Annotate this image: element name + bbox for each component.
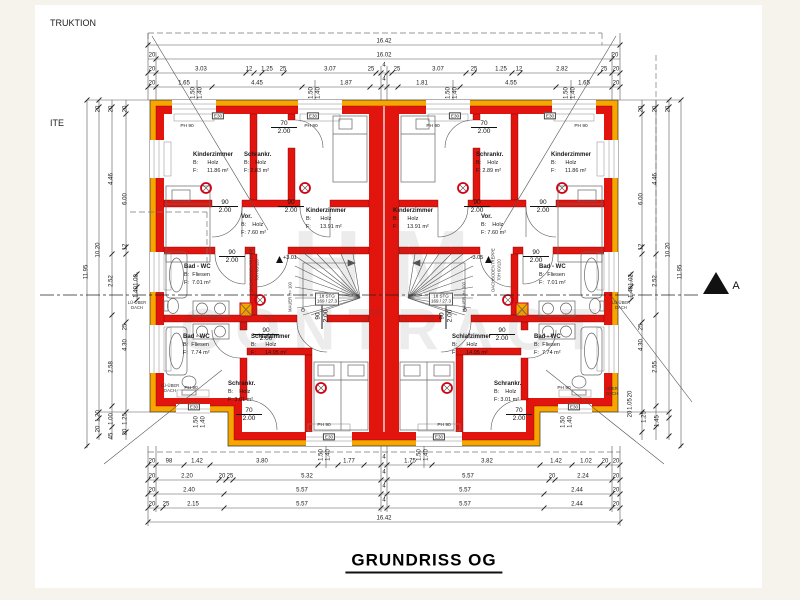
dimension-label: 1.40 xyxy=(424,449,431,461)
section-marker-label: A xyxy=(732,280,739,292)
dimension-label: 5.57 xyxy=(459,488,471,495)
edge-text-seite: ITE xyxy=(50,118,64,128)
dimension-label: 1.81 xyxy=(416,81,428,88)
dimension-label: 20 xyxy=(96,426,103,433)
dimension-label: 20 xyxy=(149,81,156,88)
dimension-label: 2.82 xyxy=(556,67,568,74)
room-area: F: 7.01 m² xyxy=(184,280,211,286)
floor-plan-canvas: .ln{stroke:#555;stroke-width:0.6;fill:no… xyxy=(0,0,800,600)
dimension-label: 98 xyxy=(166,459,173,466)
dimension-label: 20 xyxy=(612,53,619,60)
dimension-label: 2.55 xyxy=(653,361,660,373)
window-type-tag: E30 xyxy=(307,112,319,119)
dimension-label: 1.40 xyxy=(201,416,208,428)
dimension-label: 1.87 xyxy=(340,81,352,88)
dimension-label: 20 xyxy=(149,53,156,60)
dimension-label: 1.50 xyxy=(194,416,201,428)
dimension-label: 1.02 xyxy=(629,274,636,286)
dimension-label: 12 xyxy=(123,244,130,251)
dimension-label: 3.03 xyxy=(195,67,207,74)
dimension-label: 20 xyxy=(613,67,620,74)
room-floor: B: Holz xyxy=(494,389,516,395)
dimension-label: 2.58 xyxy=(109,361,116,373)
dimension-label: 6.00 xyxy=(639,193,646,205)
dimension-label: 11.95 xyxy=(678,265,685,280)
parapet-height-label: PH 90 xyxy=(317,423,330,429)
room-name: Schlafzimmer xyxy=(452,334,491,341)
dimension-label: 5.32 xyxy=(301,474,313,481)
room-name: Kinderzimmer xyxy=(306,208,346,215)
parapet-height-label: PH 90 xyxy=(557,386,570,392)
level-mark-right: -3.05 xyxy=(471,255,484,261)
window-type-tag: E30 xyxy=(323,433,335,440)
dimension-label: 16.02 xyxy=(376,53,391,60)
parapet-height-label: PH 90 xyxy=(574,124,587,130)
stair-ratio: 169 / 27.3 xyxy=(317,299,337,304)
dimension-label: 45 xyxy=(109,433,116,440)
dimension-label: 25 xyxy=(280,67,287,74)
room-name: Kinderzimmer xyxy=(551,152,591,159)
dimension-label: 1.00 xyxy=(109,413,116,425)
stair-note-left: 18 STG 169 / 27.3 xyxy=(315,293,339,306)
room-area: F: 2.83 m² xyxy=(244,168,269,174)
page-margin-left xyxy=(0,0,35,600)
dimension-label: 2.40 xyxy=(183,488,195,495)
door-size-label: 902.00 xyxy=(219,249,245,264)
page-margin-right xyxy=(762,0,800,600)
dimension-label: 25 xyxy=(227,474,234,481)
room-name: Schrankr. xyxy=(476,152,503,159)
dimension-label: 25 xyxy=(639,324,646,331)
room-area: F: 7.60 m² xyxy=(241,230,266,236)
door-size-label: 902.00 xyxy=(489,327,515,342)
dimension-label: 1.40 xyxy=(316,87,323,99)
dimension-label: 25 xyxy=(163,502,170,509)
room-floor: B: Holz xyxy=(193,160,218,166)
wall-annotation: 70H 60/120 xyxy=(256,259,261,281)
section-marker-triangle xyxy=(703,272,729,294)
room-floor: B: Holz xyxy=(551,160,576,166)
floor-plan-svg: .ln{stroke:#555;stroke-width:0.6;fill:no… xyxy=(0,0,800,600)
dimension-label: 20 xyxy=(149,474,156,481)
room-name: Schrankr. xyxy=(494,381,521,388)
room-name: Vor. xyxy=(481,214,492,221)
dimension-label: 2.52 xyxy=(653,275,660,287)
dimension-label: 1.77 xyxy=(343,459,355,466)
dimension-label: 25 xyxy=(123,324,130,331)
dimension-label: 2.20 xyxy=(181,474,193,481)
dimension-label: 1.75 xyxy=(404,459,416,466)
room-name: Vor. xyxy=(241,214,252,221)
stair-steps: 18 STG xyxy=(319,294,335,299)
page-margin-bottom xyxy=(0,588,800,600)
room-area: F: 7.74 m² xyxy=(183,350,210,356)
window-type-tag: E30 xyxy=(568,403,580,410)
door-size-label: 702.00 xyxy=(271,120,297,135)
dimension-label: 1.00 xyxy=(134,274,141,286)
dimension-label: 4.55 xyxy=(505,81,517,88)
room-name: Kinderzimmer xyxy=(193,152,233,159)
dimension-label: 20 xyxy=(628,411,635,418)
door-size-label: 902.00 xyxy=(439,303,454,329)
dimension-label: 1.20 xyxy=(96,410,103,422)
door-size-label: 702.00 xyxy=(471,120,497,135)
room-area: F: 13.91 m² xyxy=(306,224,342,230)
room-area: F: 13.91 m² xyxy=(393,224,429,230)
parapet-height-label: PH 90 xyxy=(180,124,193,130)
dimension-label: 1.50 xyxy=(309,87,316,99)
dimension-label: 1.25 xyxy=(261,67,273,74)
dimension-label: 1.45 xyxy=(655,415,662,427)
room-name: Bad - WC xyxy=(183,334,210,341)
dimension-label: 1.02 xyxy=(580,459,592,466)
door-size-label: 902.00 xyxy=(315,303,330,329)
dimension-label: 1.40 xyxy=(134,286,141,298)
window-type-tag: E30 xyxy=(433,433,445,440)
room-floor: B: Holz xyxy=(228,389,250,395)
door-size-label: 902.00 xyxy=(278,199,304,214)
room-floor: B: Holz xyxy=(452,342,477,348)
dimension-label: 2.44 xyxy=(571,488,583,495)
dimension-label: 4.46 xyxy=(109,173,116,185)
dimension-label: 12 xyxy=(246,67,253,74)
room-floor: B: Holz xyxy=(241,222,263,228)
dimension-label: 1.25 xyxy=(642,411,649,423)
door-size-label: 702.00 xyxy=(506,407,532,422)
dimension-label: 20 xyxy=(149,459,156,466)
dimension-label: 16.42 xyxy=(376,39,391,46)
room-floor: B: Fliesen xyxy=(183,342,209,348)
dimension-label: 3.07 xyxy=(324,67,336,74)
dimension-label: 3.07 xyxy=(432,67,444,74)
dimension-label: 10.20 xyxy=(666,242,673,257)
parapet-height-label: PH 90 xyxy=(304,124,317,130)
dimension-label: 1.40 xyxy=(453,87,460,99)
dimension-label: 20 xyxy=(123,429,130,436)
dimension-label: 11.95 xyxy=(84,265,91,280)
dimension-label: 25 xyxy=(471,67,478,74)
dimension-label: 1.05 xyxy=(628,398,635,410)
dimension-label: 1.42 xyxy=(191,459,203,466)
dimension-label: 1.50 xyxy=(417,449,424,461)
dimension-label: 4.30 xyxy=(639,339,646,351)
dimension-label: 1.65 xyxy=(178,81,190,88)
dimension-label: 20 xyxy=(613,502,620,509)
stair-steps: 18 STG xyxy=(433,294,449,299)
room-name: Bad - WC xyxy=(534,334,561,341)
page-margin-top xyxy=(0,0,800,5)
room-name: Schrankr. xyxy=(244,152,271,159)
dimension-label: 5.57 xyxy=(296,502,308,509)
room-floor: B: Fliesen xyxy=(534,342,560,348)
dimension-label: 4 xyxy=(382,63,385,70)
dimension-label: 25 xyxy=(394,67,401,74)
level-mark-left: +3.01 xyxy=(283,255,297,261)
room-area: F: 2.89 m² xyxy=(476,168,501,174)
dimension-label: 1.50 xyxy=(564,87,571,99)
wall-annotation: 70H 60/120 xyxy=(498,259,503,281)
room-floor: B: Holz xyxy=(306,216,331,222)
vent-note: LÜ-ÜBER DACH xyxy=(128,301,146,311)
room-floor: B: Fliesen xyxy=(184,272,210,278)
window-type-tag: E30 xyxy=(544,112,556,119)
door-size-label: 902.00 xyxy=(464,199,490,214)
window-type-tag: E30 xyxy=(449,112,461,119)
dimension-label: 1.40 xyxy=(198,87,205,99)
dimension-label: 16.42 xyxy=(376,516,391,523)
room-floor: B: Holz xyxy=(251,342,276,348)
door-size-label: 902.00 xyxy=(212,199,238,214)
dimension-label: 20 xyxy=(549,474,556,481)
dimension-label: 4 xyxy=(382,455,385,462)
room-name: Bad - WC xyxy=(184,264,211,271)
door-size-label: 902.00 xyxy=(523,249,549,264)
vent-note: LÜ-ÜBER DACH xyxy=(612,301,630,311)
dimension-label: 20 xyxy=(653,106,660,113)
dimension-label: 20 xyxy=(149,67,156,74)
dimension-label: 6.00 xyxy=(123,193,130,205)
stair-note-right: 18 STG 169 / 27.3 xyxy=(429,293,453,306)
dimension-label: 1.40 xyxy=(571,87,578,99)
room-floor: B: Holz xyxy=(244,160,266,166)
dimension-label: 20 xyxy=(628,391,635,398)
dimension-label: 2.52 xyxy=(109,275,116,287)
drawing-title: GRUNDRISS OG xyxy=(345,551,502,574)
dimension-label: 4 xyxy=(382,484,385,491)
vent-note: LÜ-ÜBER DACH xyxy=(161,384,179,394)
dimension-label: 20 xyxy=(613,81,620,88)
dimension-label: 20 xyxy=(666,106,673,113)
dimension-label: 2.24 xyxy=(577,474,589,481)
room-area: F: 14.95 m² xyxy=(251,350,287,356)
dimension-label: 12 xyxy=(516,67,523,74)
dimension-label: 25 xyxy=(601,67,608,74)
dimension-label: 3.82 xyxy=(481,459,493,466)
wall-annotation: MAUER H= 100 xyxy=(289,282,294,312)
room-floor: B: Holz xyxy=(393,216,418,222)
room-floor: B: Holz xyxy=(476,160,498,166)
room-area: F: 3.01 m² xyxy=(228,397,253,403)
dimension-label: 1.40 xyxy=(629,286,636,298)
dimension-label: 20 xyxy=(613,474,620,481)
dimension-label: 1.50 xyxy=(561,416,568,428)
room-area: F: 3.01 m² xyxy=(494,397,519,403)
parapet-height-label: PH 90 xyxy=(426,124,439,130)
dimension-label: 1.50 xyxy=(319,449,326,461)
room-name: Kinderzimmer xyxy=(393,208,433,215)
dimension-label: 4 xyxy=(382,470,385,477)
shaft xyxy=(240,303,252,316)
room-floor: B: Holz xyxy=(481,222,503,228)
dimension-label: 4.46 xyxy=(653,173,660,185)
door-size-label: 902.00 xyxy=(253,327,279,342)
dimension-label: 1.42 xyxy=(550,459,562,466)
dimension-label: 20 xyxy=(149,488,156,495)
dimension-label: 12 xyxy=(639,244,646,251)
dimension-label: 20 xyxy=(602,459,609,466)
dimension-label: 5.57 xyxy=(296,488,308,495)
dimension-label: 1.25 xyxy=(123,413,130,425)
room-area: F: 11.86 m² xyxy=(551,168,586,174)
room-floor: B: Fliesen xyxy=(539,272,565,278)
dimension-label: 1.50 xyxy=(191,87,198,99)
room-name: Schrankr. xyxy=(228,381,255,388)
room-area: F: 11.86 m² xyxy=(193,168,228,174)
dimension-label: 5.57 xyxy=(459,502,471,509)
stair-ratio: 169 / 27.3 xyxy=(431,299,451,304)
room-area: F: 7.74 m² xyxy=(534,350,561,356)
parapet-height-label: PH 90 xyxy=(184,386,197,392)
window-type-tag: E30 xyxy=(212,112,224,119)
dimension-label: 10.20 xyxy=(96,242,103,257)
dimension-label: 1.65 xyxy=(578,81,590,88)
dimension-label: 20 xyxy=(149,502,156,509)
room-area: F: 7.01 m² xyxy=(539,280,566,286)
vent-note: ÜBER DACH xyxy=(606,387,618,397)
dimension-label: 20 xyxy=(123,106,130,113)
dimension-label: 1.50 xyxy=(446,87,453,99)
window-type-tag: E30 xyxy=(188,403,200,410)
dimension-label: 1.25 xyxy=(495,67,507,74)
room-area: F: 14.95 m² xyxy=(452,350,488,356)
dimension-label: 2.44 xyxy=(571,502,583,509)
dimension-label: 20 xyxy=(639,106,646,113)
dimension-label: 1.40 xyxy=(326,449,333,461)
wall-annotation: MAUER H= 100 xyxy=(463,282,468,312)
dimension-label: 4.30 xyxy=(123,339,130,351)
room-area: F: 7.60 m² xyxy=(481,230,506,236)
room-name: Bad - WC xyxy=(539,264,566,271)
dimension-label: 1.40 xyxy=(568,416,575,428)
edge-text-konstruktion: TRUKTION xyxy=(50,18,96,28)
dimension-label: 3.80 xyxy=(256,459,268,466)
dimension-label: 25 xyxy=(368,67,375,74)
dimension-label: 4 xyxy=(382,498,385,505)
dimension-label: 20 xyxy=(109,106,116,113)
dimension-label: 4 xyxy=(382,77,385,84)
dimension-label: 4.45 xyxy=(251,81,263,88)
dimension-label: 20 xyxy=(613,488,620,495)
door-size-label: 702.00 xyxy=(236,407,262,422)
door-size-label: 902.00 xyxy=(530,199,556,214)
parapet-height-label: PH 90 xyxy=(437,423,450,429)
dimension-label: 5.57 xyxy=(462,474,474,481)
dimension-label: 20 xyxy=(96,106,103,113)
dimension-label: 20 xyxy=(613,459,620,466)
dimension-label: 2.15 xyxy=(187,502,199,509)
dimension-label: 20 xyxy=(219,474,226,481)
